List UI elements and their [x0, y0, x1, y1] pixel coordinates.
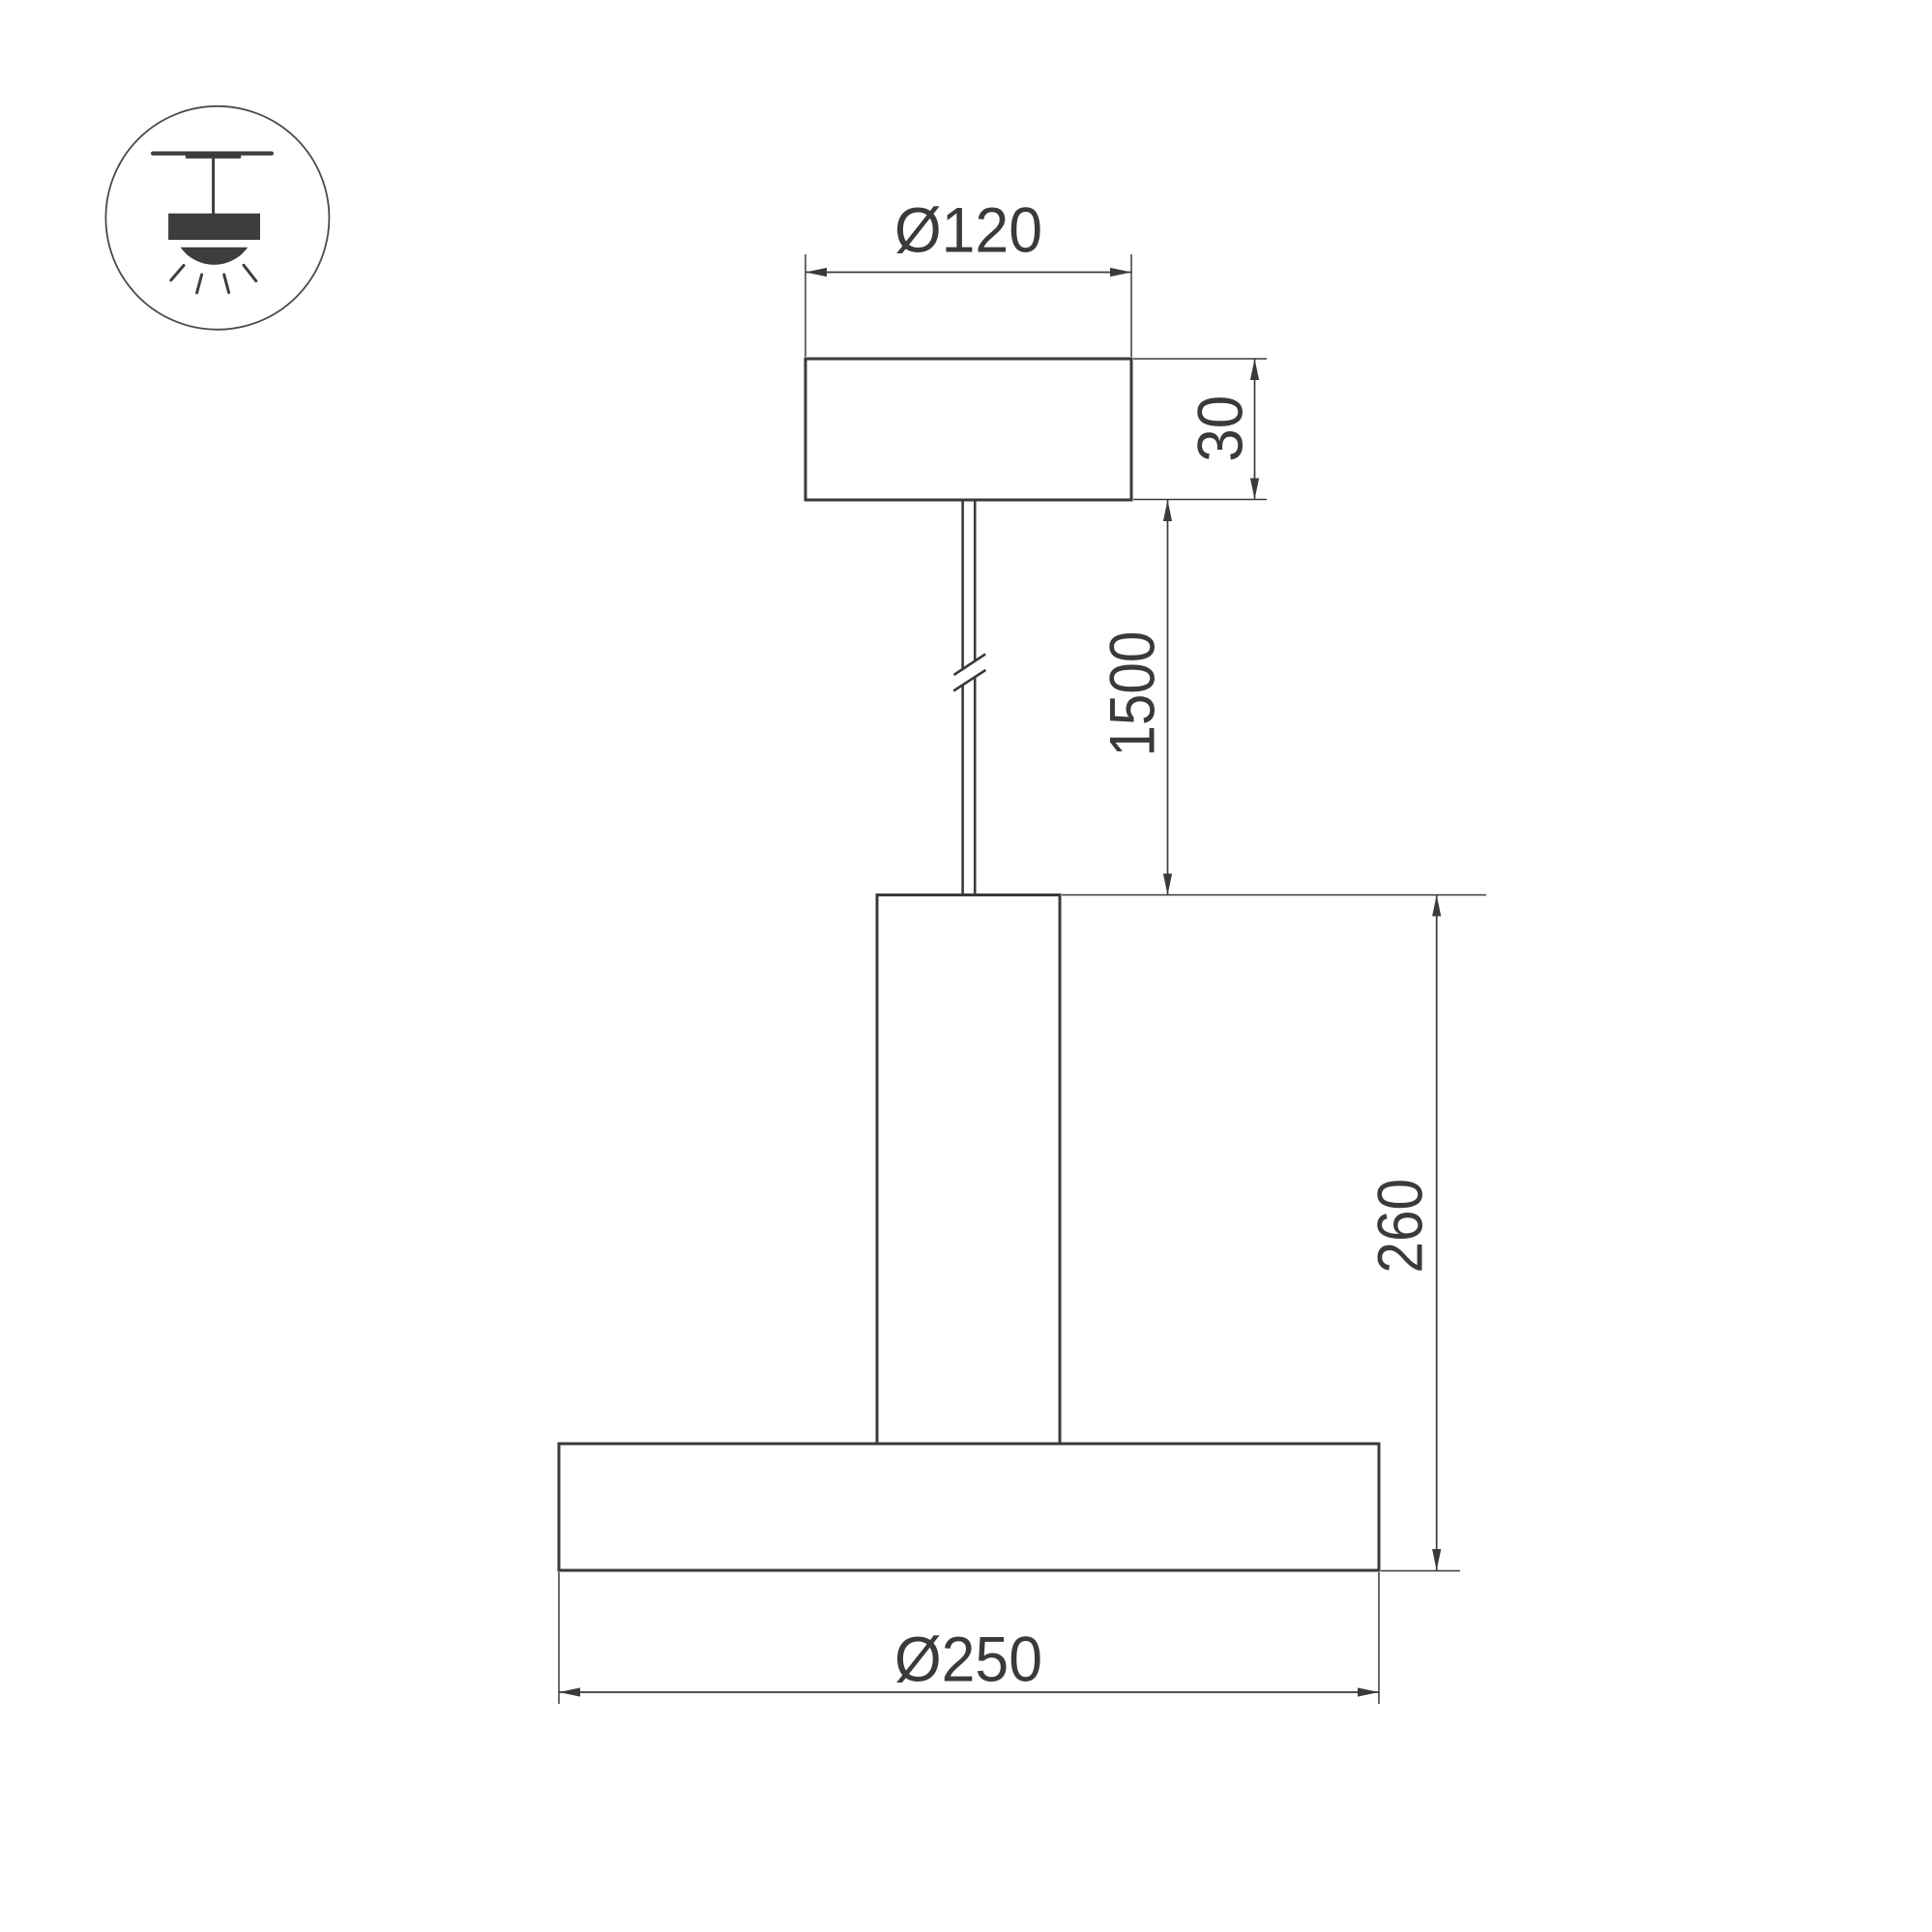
- svg-text:1500: 1500: [1097, 631, 1168, 757]
- svg-text:Ø120: Ø120: [894, 194, 1042, 266]
- svg-text:260: 260: [1364, 1179, 1436, 1273]
- svg-text:30: 30: [1185, 395, 1256, 462]
- svg-text:Ø250: Ø250: [894, 1624, 1042, 1695]
